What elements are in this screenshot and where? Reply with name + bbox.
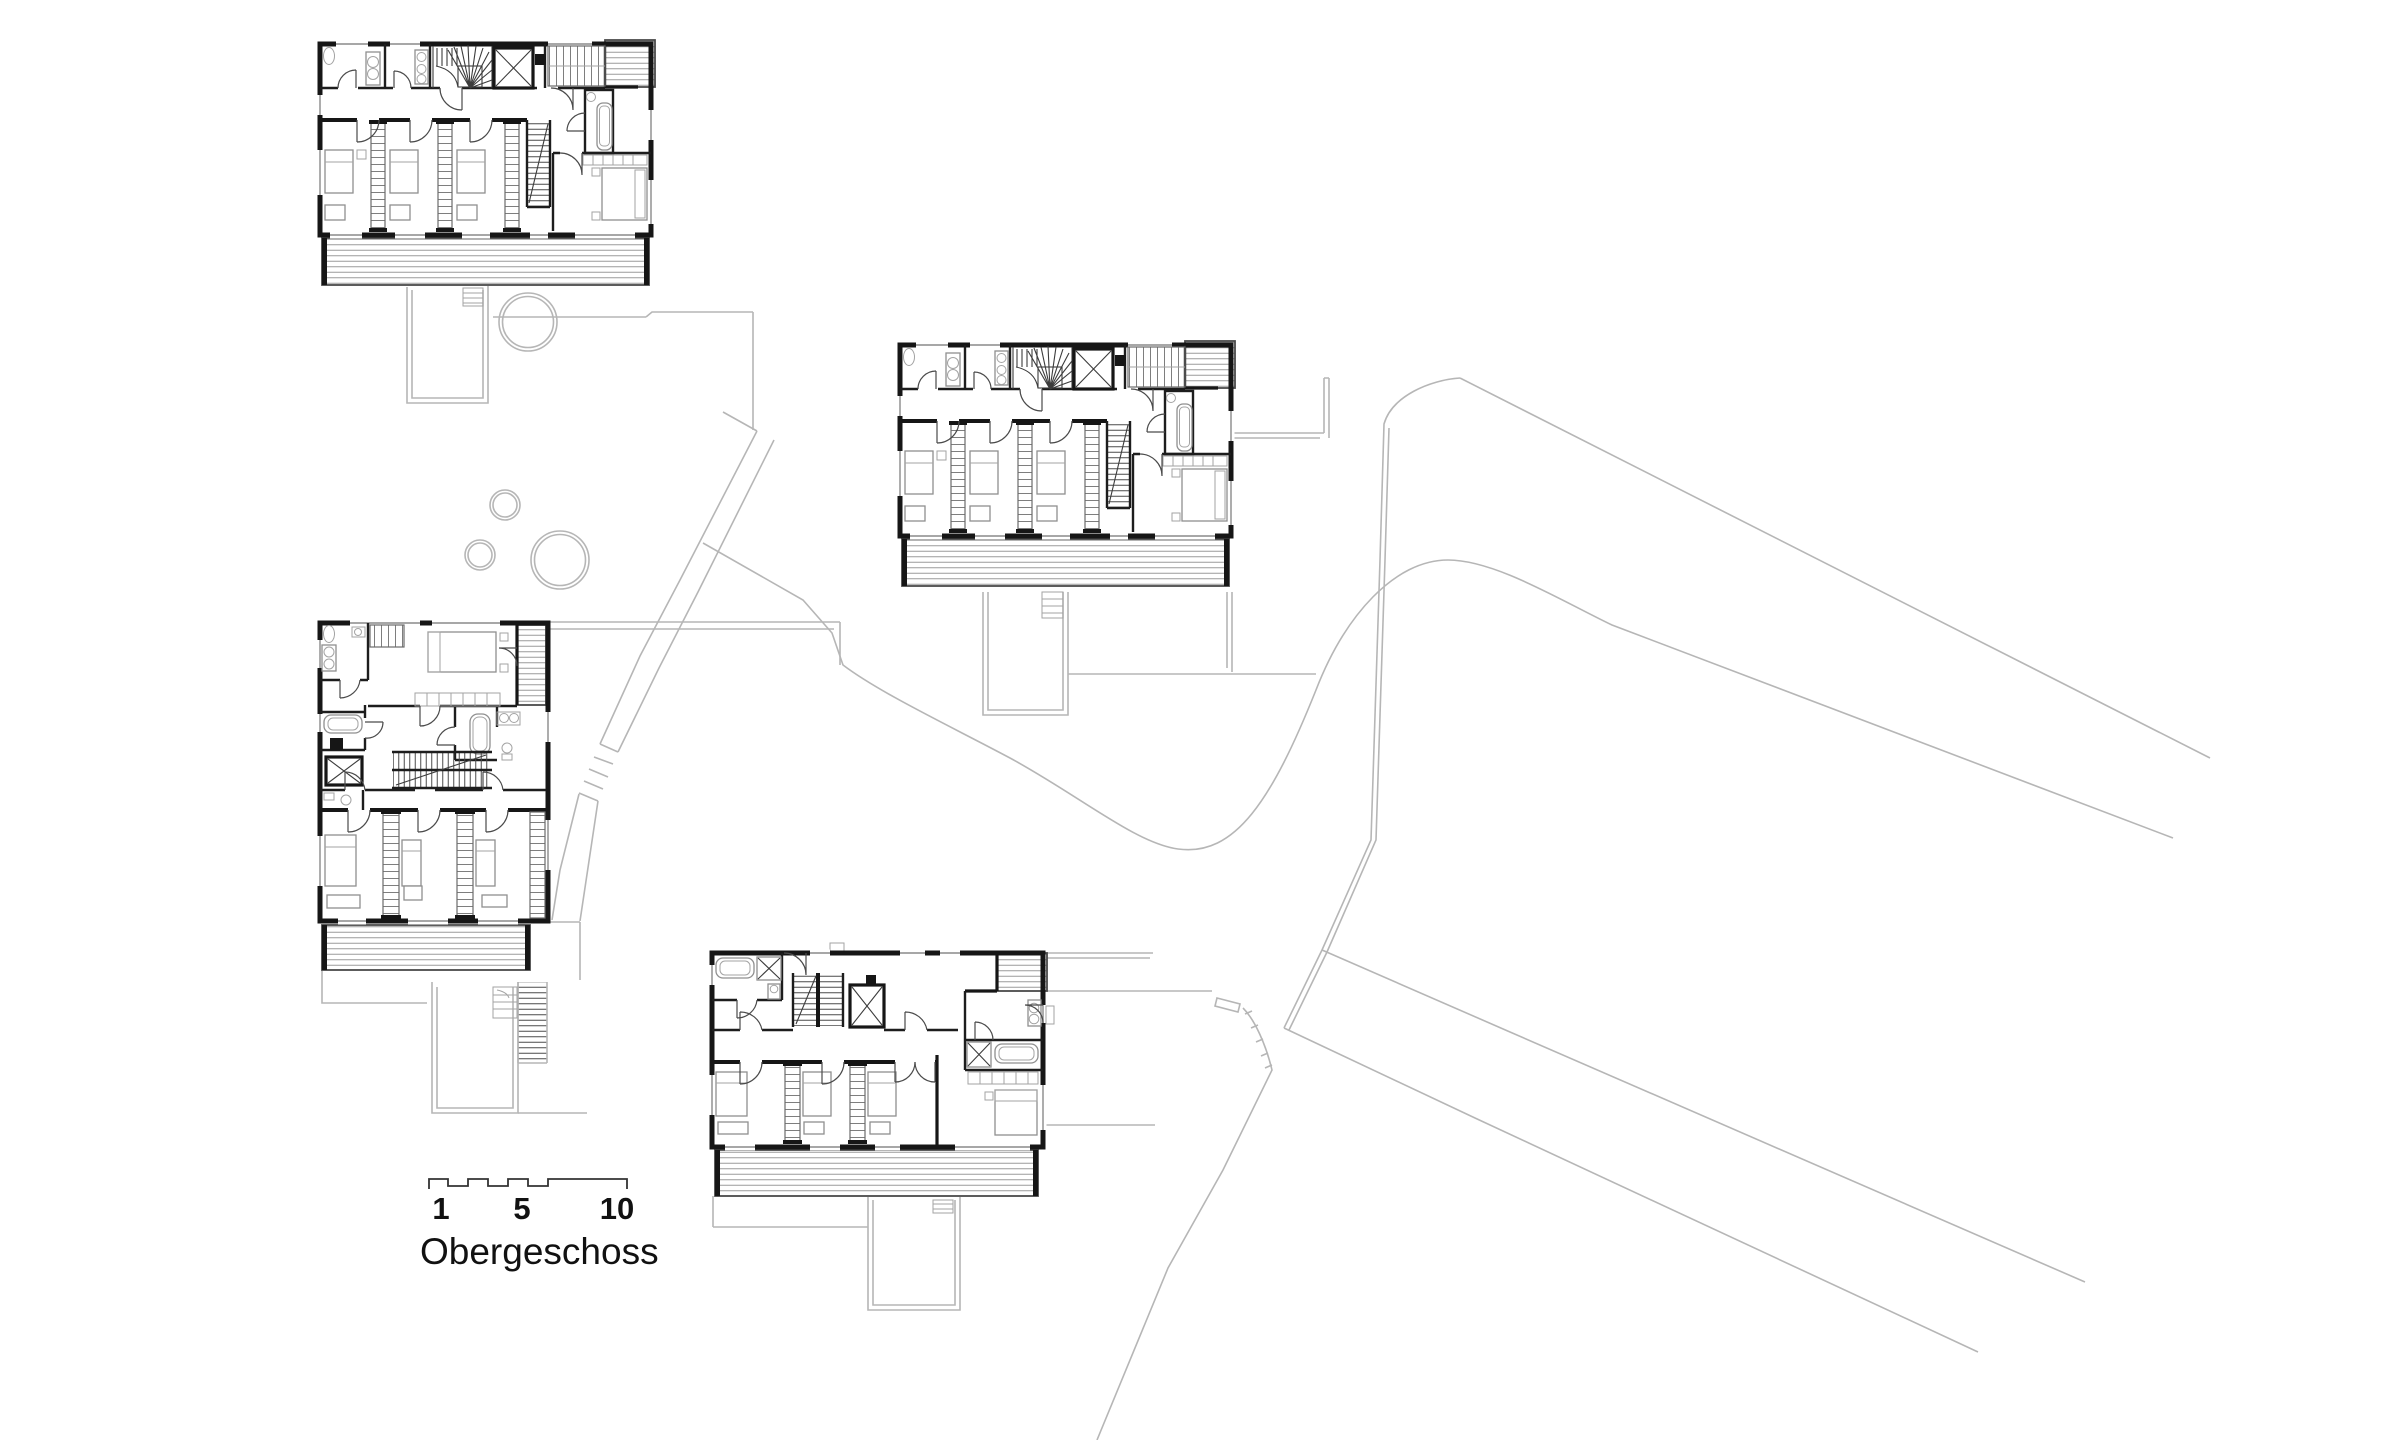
balcony [322, 925, 530, 970]
building-plan-northwest [320, 40, 655, 285]
scale-tick-10: 10 [600, 1191, 634, 1226]
building-plan-center [900, 341, 1235, 586]
building-plan-west [320, 623, 548, 970]
scale-tick-5: 5 [513, 1191, 530, 1226]
drawing-title: Obergeschoss [420, 1231, 659, 1272]
shaft [330, 738, 343, 750]
floor-plan-canvas: 1 5 10 Obergeschoss [0, 0, 2400, 1440]
building-plan-south [712, 943, 1054, 1196]
scale-bar: 1 5 10 [429, 1179, 634, 1226]
floor-plan-page: 1 5 10 Obergeschoss [0, 0, 2400, 1440]
balcony [715, 1150, 1038, 1196]
roof-deck [997, 953, 1047, 991]
windows [712, 953, 1043, 1147]
elevator [326, 757, 362, 785]
bathroom [322, 626, 365, 672]
loggia [517, 625, 546, 705]
elevator [850, 985, 884, 1027]
closet [370, 625, 404, 647]
switchback-stair [793, 973, 843, 1027]
furniture [716, 1072, 1037, 1135]
shaft [866, 975, 876, 984]
scale-tick-1: 1 [432, 1191, 449, 1226]
central-stair [392, 752, 492, 788]
